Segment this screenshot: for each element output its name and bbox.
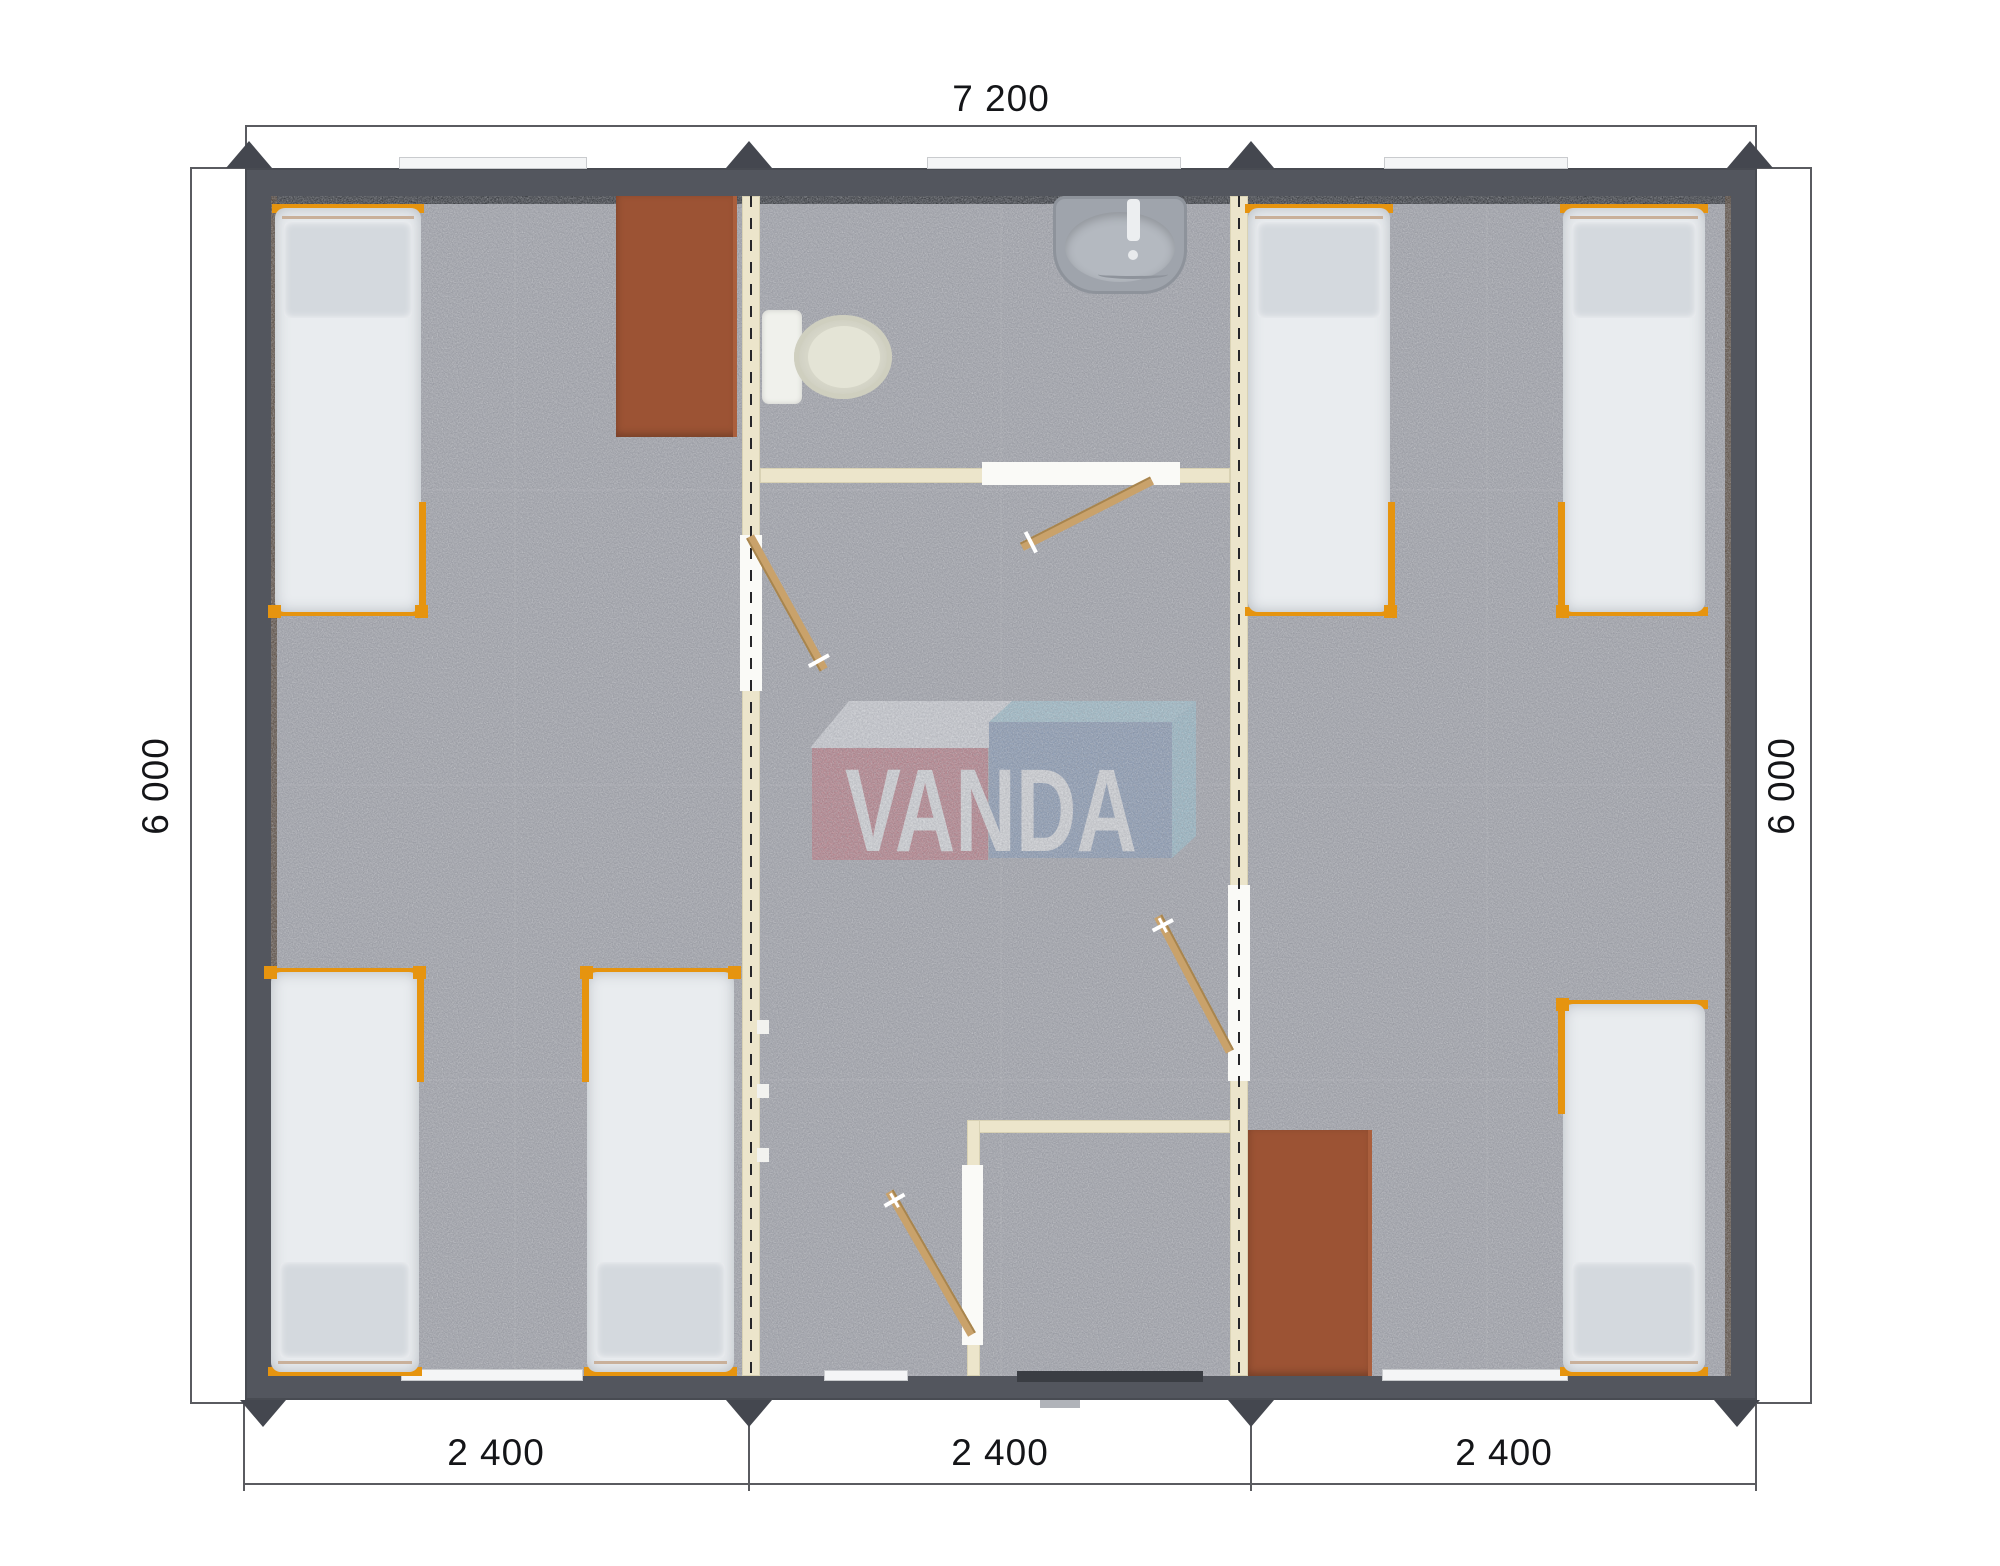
roof-marker-bottom-1 [240,1400,286,1427]
wall-tab-1 [757,1020,769,1034]
window-bottom-right [1383,1370,1567,1380]
window-bottom-middle [825,1371,907,1380]
dim-line-top [245,125,1757,127]
bed [1245,204,1393,616]
partition-center-line-right [1238,196,1240,1376]
roof-marker-top-2 [726,141,772,168]
bed [1560,204,1708,616]
roof-marker-bottom-2 [726,1400,772,1427]
bed [584,968,737,1376]
lobby-wall-top [967,1120,1230,1133]
dim-label-bottom-2: 2 400 [951,1432,1049,1474]
roof-marker-bottom-4 [1714,1400,1760,1427]
wall-tab-2 [757,1084,769,1098]
roof-marker-bottom-3 [1228,1400,1274,1427]
wall-tab-3 [757,1148,769,1162]
bed [268,968,422,1376]
floor [271,196,1731,1376]
window-top-left [400,158,586,168]
bed [272,204,424,616]
dim-label-bottom-3: 2 400 [1455,1432,1553,1474]
table-top-left [616,196,737,437]
roof-marker-top-4 [1727,141,1773,168]
dim-label-bottom-1: 2 400 [447,1432,545,1474]
dim-label-right: 6 000 [1761,737,1803,835]
dim-line-left [190,167,192,1404]
dim-label-left: 6 000 [135,737,177,835]
window-top-middle [928,158,1180,168]
floor-plan-canvas: 7 200 6 000 6 000 2 400 2 400 2 400 VAND… [0,0,2000,1566]
window-top-right [1385,158,1567,168]
window-bottom-left [402,1370,582,1380]
sink-drain [1098,270,1168,279]
dim-label-top: 7 200 [952,78,1050,120]
faucet-dot [1128,250,1138,260]
dim-line-right [1810,167,1812,1404]
wall-lining-top [271,196,1731,204]
entrance-step [1040,1400,1080,1408]
bed [1560,1000,1708,1376]
cabinet-bottom-right [1248,1130,1372,1376]
dim-line-bottom [243,1483,1757,1485]
roof-marker-top-1 [226,141,272,168]
roof-marker-top-3 [1228,141,1274,168]
wall-lining-right [1725,196,1731,1376]
partition-center-line-left [750,196,752,1376]
dim-ext-left-bottom [190,1402,245,1404]
toilet-seat [808,326,880,388]
faucet [1127,199,1140,241]
entrance-door [1017,1371,1203,1382]
dim-ext-right-bottom [1757,1402,1812,1404]
